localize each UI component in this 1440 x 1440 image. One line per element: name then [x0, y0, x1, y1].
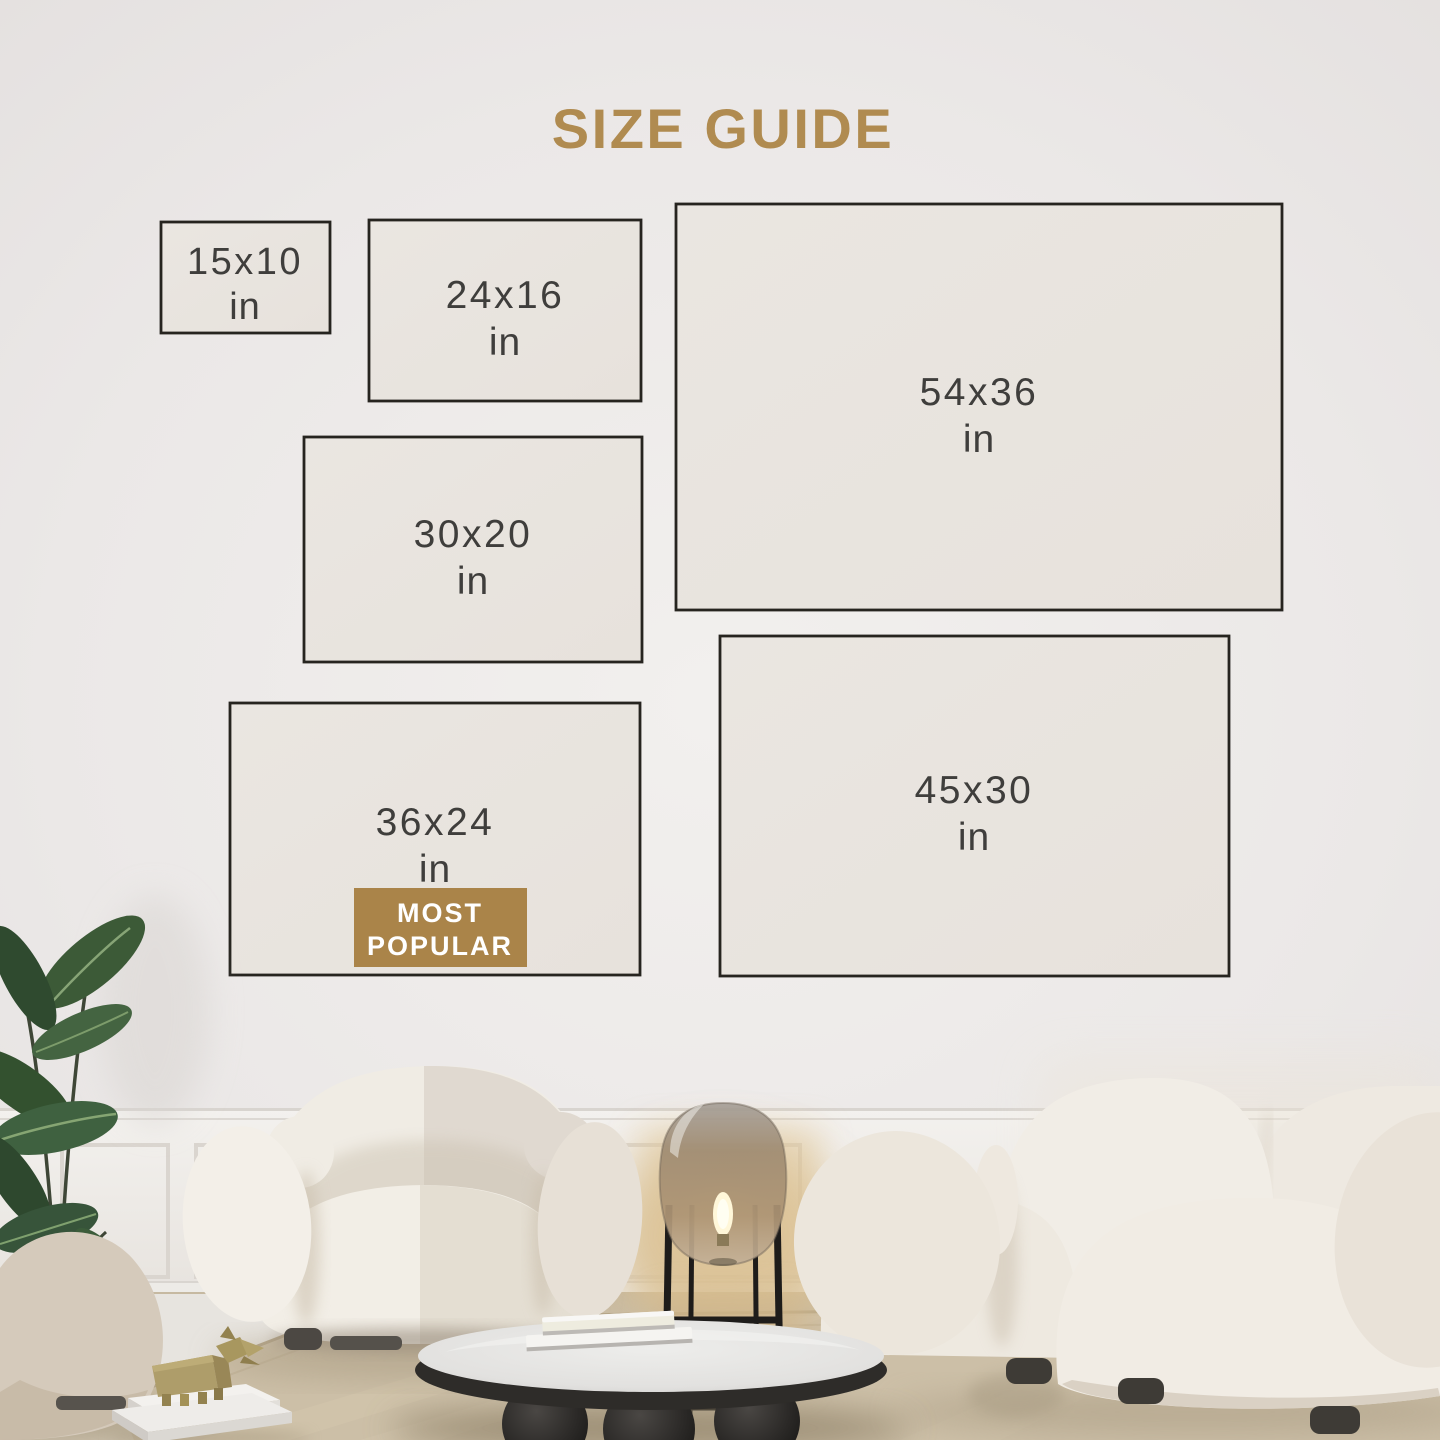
svg-text:54x36: 54x36 — [920, 371, 1039, 414]
svg-text:30x20: 30x20 — [414, 513, 533, 556]
svg-text:POPULAR: POPULAR — [367, 931, 513, 961]
svg-text:MOST: MOST — [397, 898, 483, 928]
svg-text:24x16: 24x16 — [446, 274, 565, 317]
svg-text:in: in — [419, 848, 451, 891]
svg-text:in: in — [958, 816, 990, 859]
svg-text:in: in — [229, 286, 261, 328]
svg-text:45x30: 45x30 — [915, 769, 1034, 812]
svg-text:15x10: 15x10 — [187, 241, 303, 283]
svg-text:36x24: 36x24 — [376, 801, 495, 844]
svg-text:in: in — [457, 560, 489, 603]
svg-text:SIZE GUIDE: SIZE GUIDE — [552, 97, 894, 160]
svg-text:in: in — [489, 321, 521, 364]
svg-text:in: in — [963, 418, 995, 461]
